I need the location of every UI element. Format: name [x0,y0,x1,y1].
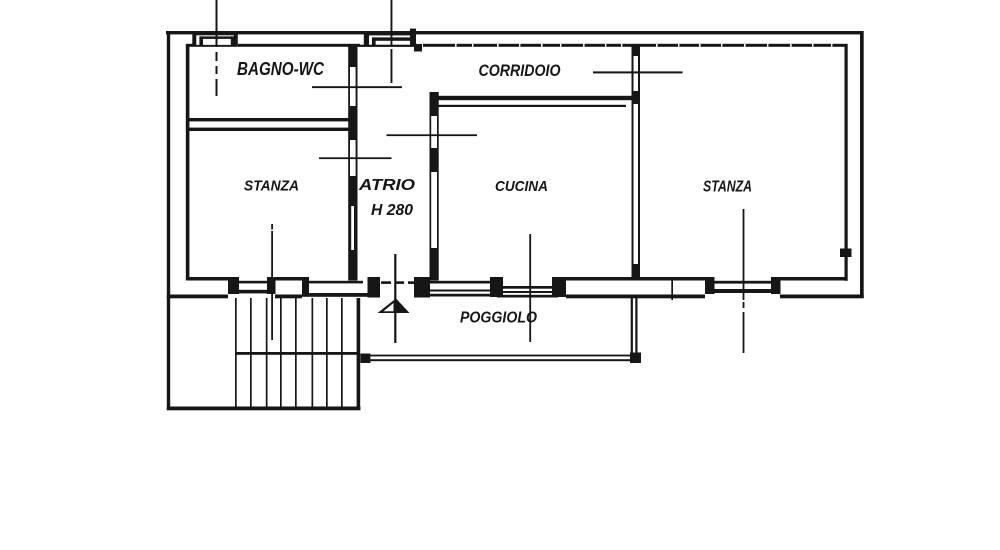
svg-text:STANZA: STANZA [244,177,299,194]
svg-text:POGGIOLO: POGGIOLO [460,310,537,327]
svg-text:STANZA: STANZA [703,179,752,196]
svg-text:BAGNO-WC: BAGNO-WC [237,59,325,79]
svg-text:ATRIO: ATRIO [358,177,415,194]
svg-text:CORRIDOIO: CORRIDOIO [479,61,561,80]
svg-text:H 280: H 280 [371,202,413,219]
svg-text:CUCINA: CUCINA [495,178,548,195]
